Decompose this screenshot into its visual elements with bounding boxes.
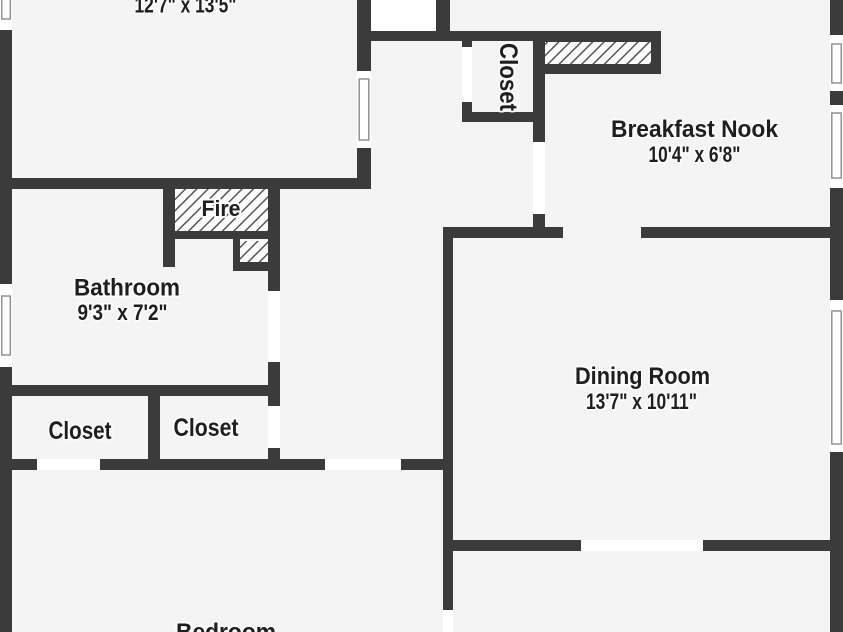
svg-text:Closet: Closet — [49, 417, 113, 445]
svg-text:Breakfast Nook: Breakfast Nook — [611, 116, 779, 143]
svg-text:Dining Room: Dining Room — [575, 363, 710, 390]
svg-text:Bathroom: Bathroom — [74, 275, 180, 302]
svg-text:13'7" x 10'11": 13'7" x 10'11" — [586, 389, 697, 414]
svg-text:Closet: Closet — [494, 43, 522, 112]
svg-text:9'3" x 7'2": 9'3" x 7'2" — [78, 300, 168, 325]
svg-text:Fire: Fire — [202, 196, 241, 221]
svg-text:12'7" x 13'5": 12'7" x 13'5" — [135, 0, 237, 18]
svg-text:Bedroom: Bedroom — [176, 619, 276, 632]
svg-text:Closet: Closet — [174, 414, 240, 442]
svg-text:10'4" x 6'8": 10'4" x 6'8" — [649, 142, 741, 167]
